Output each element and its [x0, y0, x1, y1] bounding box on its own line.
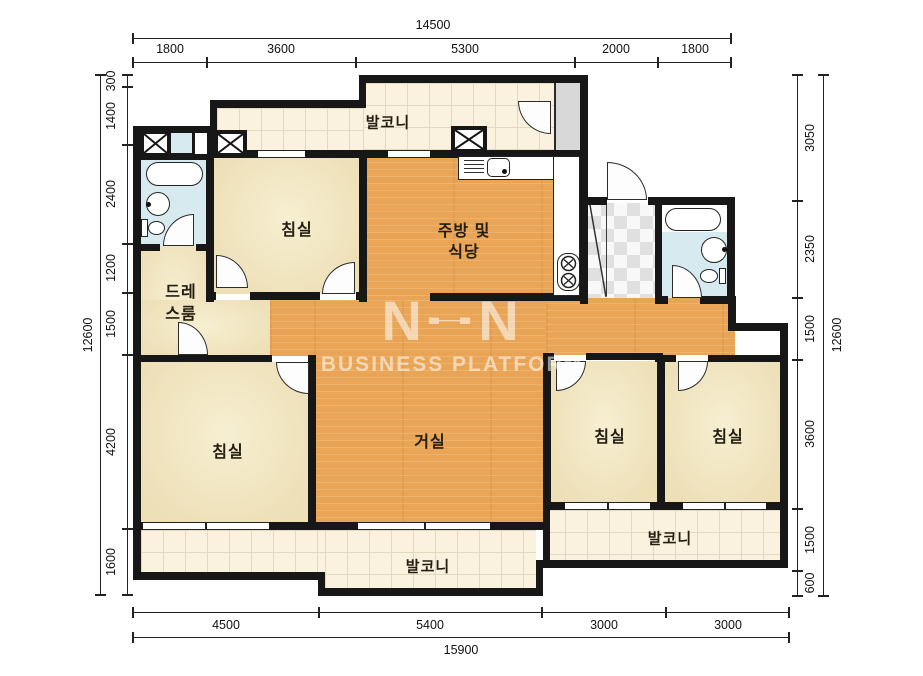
dim-tick	[818, 74, 829, 76]
dim-tick	[122, 74, 133, 76]
dim-line	[797, 75, 798, 596]
wall	[543, 510, 550, 568]
bathtub-icon	[665, 208, 721, 231]
wall	[196, 244, 208, 251]
dim-tick	[730, 33, 732, 44]
bathtub-icon	[146, 162, 203, 186]
dim-tick	[792, 297, 803, 299]
dim-line	[100, 75, 101, 595]
dim-tick	[792, 359, 803, 361]
dim-tick	[788, 607, 790, 618]
corridor-floor	[546, 296, 735, 355]
dim-left-total: 12600	[81, 318, 95, 353]
room-label-kitchen-line2: 식당	[448, 238, 479, 262]
toilet-icon	[148, 221, 165, 235]
room-label-bedroom1: 침실	[281, 216, 312, 240]
room-label-bedroom3: 침실	[594, 423, 625, 447]
dim-tick	[788, 632, 790, 643]
dim-bottom-seg-3: 3000	[714, 618, 742, 632]
dim-left-seg-4: 1500	[104, 310, 118, 338]
dim-line	[133, 612, 790, 613]
dim-right-seg-4: 1500	[803, 526, 817, 554]
stove-burner-icon	[559, 255, 578, 289]
dim-tick	[574, 57, 576, 68]
wall	[727, 197, 735, 304]
kitchen-sink-icon	[487, 158, 510, 177]
wall	[318, 588, 543, 596]
dim-top-total: 14500	[416, 18, 451, 32]
dim-tick	[122, 292, 133, 294]
shaft-x-icon	[451, 126, 487, 153]
dim-right-seg-2: 1500	[803, 315, 817, 343]
window-mullion	[724, 502, 726, 510]
dim-line	[133, 62, 732, 63]
entrance-door-arc	[607, 162, 647, 200]
dim-bottom-seg-2: 3000	[590, 618, 618, 632]
shaft-box	[192, 130, 210, 157]
shaft-x-icon	[214, 130, 247, 157]
dim-tick	[792, 570, 803, 572]
stove-hatch-icon	[464, 160, 484, 176]
dim-line	[127, 75, 128, 595]
dim-left-seg-2: 2400	[104, 180, 118, 208]
wall	[580, 75, 588, 304]
dim-tick	[657, 57, 659, 68]
window	[258, 150, 305, 158]
wall	[206, 292, 216, 300]
dim-tick	[122, 243, 133, 245]
wall	[250, 292, 320, 300]
wall	[133, 355, 272, 362]
room-label-dressroom-line1: 드레	[165, 278, 196, 302]
wall	[206, 150, 214, 302]
floor-plan: 발코니 침실 주방 및 식당 드레 스룸 거실 침실 침실 침실 발코니 발코니…	[0, 0, 923, 676]
wall	[708, 355, 788, 362]
dim-top-seg-2: 5300	[451, 42, 479, 56]
dim-tick	[792, 74, 803, 76]
faucet-dot	[146, 202, 151, 207]
dim-bottom-seg-0: 4500	[212, 618, 240, 632]
wall	[210, 100, 366, 108]
dim-line	[823, 75, 824, 596]
dim-right-seg-3: 3600	[803, 420, 817, 448]
dim-tick	[122, 86, 133, 88]
window-mullion	[424, 522, 426, 530]
room-label-bedroom2: 침실	[212, 438, 243, 462]
dim-tick	[665, 607, 667, 618]
wall	[728, 323, 788, 331]
room-label-living: 거실	[414, 428, 445, 452]
wall	[308, 355, 316, 530]
dim-tick	[206, 57, 208, 68]
hall-wood-floor	[270, 300, 316, 356]
kitchen-faucet-dot	[502, 169, 507, 174]
dim-tick	[818, 595, 829, 597]
wall	[655, 296, 668, 304]
dim-line	[133, 637, 790, 638]
dim-tick	[95, 594, 106, 596]
shaft-x-icon	[140, 130, 171, 157]
wall	[359, 150, 367, 302]
dim-left-seg-1: 1400	[104, 102, 118, 130]
dim-top-seg-4: 1800	[681, 42, 709, 56]
wall	[580, 197, 607, 205]
dim-bottom-seg-1: 5400	[416, 618, 444, 632]
dim-tick	[318, 607, 320, 618]
faucet-dot	[722, 247, 727, 252]
entry-diagonal-line	[588, 205, 608, 297]
wall	[655, 205, 662, 296]
wall	[359, 75, 588, 83]
dim-line	[133, 38, 732, 39]
dim-top-seg-0: 1800	[156, 42, 184, 56]
room-label-dressroom-line2: 스룸	[165, 300, 196, 324]
toilet-icon	[719, 268, 726, 284]
living-room-floor	[314, 300, 546, 523]
wall	[137, 244, 160, 251]
window-mullion	[607, 502, 609, 510]
dim-top-seg-3: 2000	[602, 42, 630, 56]
dim-tick	[355, 57, 357, 68]
ac-shaft-area	[554, 83, 582, 151]
dim-tick	[541, 607, 543, 618]
room-label-balcony-right: 발코니	[648, 528, 692, 549]
dim-right-seg-1: 2350	[803, 235, 817, 263]
wall	[536, 560, 788, 568]
dim-right-seg-5: 600	[803, 573, 817, 594]
room-label-balcony-top: 발코니	[366, 112, 410, 133]
dim-tick	[792, 508, 803, 510]
dim-left-seg-6: 1600	[104, 548, 118, 576]
dim-top-seg-1: 3600	[267, 42, 295, 56]
room-label-bedroom4: 침실	[712, 423, 743, 447]
toilet-icon	[141, 219, 148, 237]
dim-left-seg-5: 4200	[104, 428, 118, 456]
wall	[133, 572, 325, 580]
dim-tick	[792, 200, 803, 202]
dim-tick	[122, 144, 133, 146]
window	[388, 150, 430, 158]
dim-left-seg-0: 300	[104, 71, 118, 92]
dim-left-seg-3: 1200	[104, 254, 118, 282]
dim-tick	[132, 33, 134, 44]
dim-right-total: 12600	[830, 318, 844, 353]
wall	[543, 353, 551, 510]
dim-tick	[132, 607, 134, 618]
wall	[728, 296, 736, 331]
dim-bottom-total: 15900	[444, 643, 479, 657]
dim-tick	[132, 632, 134, 643]
dim-right-seg-0: 3050	[803, 124, 817, 152]
wall	[133, 126, 141, 580]
dim-tick	[122, 594, 133, 596]
dim-tick	[730, 57, 732, 68]
dim-tick	[792, 595, 803, 597]
toilet-icon	[700, 269, 718, 283]
wall	[657, 355, 665, 505]
wall	[586, 353, 663, 360]
dim-tick	[122, 528, 133, 530]
window-mullion	[205, 522, 207, 530]
dim-tick	[132, 57, 134, 68]
wall	[648, 197, 735, 205]
dim-tick	[122, 354, 133, 356]
room-label-balcony-bottom: 발코니	[406, 556, 450, 577]
